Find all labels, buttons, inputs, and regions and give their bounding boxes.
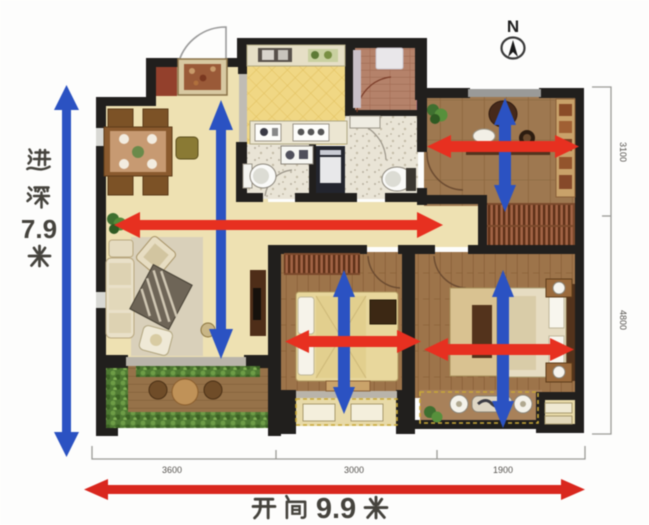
svg-text:3100: 3100 <box>618 142 628 162</box>
svg-text:1900: 1900 <box>493 465 513 475</box>
svg-text:4800: 4800 <box>618 310 628 330</box>
svg-text:3000: 3000 <box>344 465 364 475</box>
svg-text:N: N <box>507 17 519 36</box>
svg-text:3600: 3600 <box>162 465 182 475</box>
svg-text:7.9: 7.9 <box>21 214 57 244</box>
svg-text:9.9: 9.9 <box>316 493 356 525</box>
